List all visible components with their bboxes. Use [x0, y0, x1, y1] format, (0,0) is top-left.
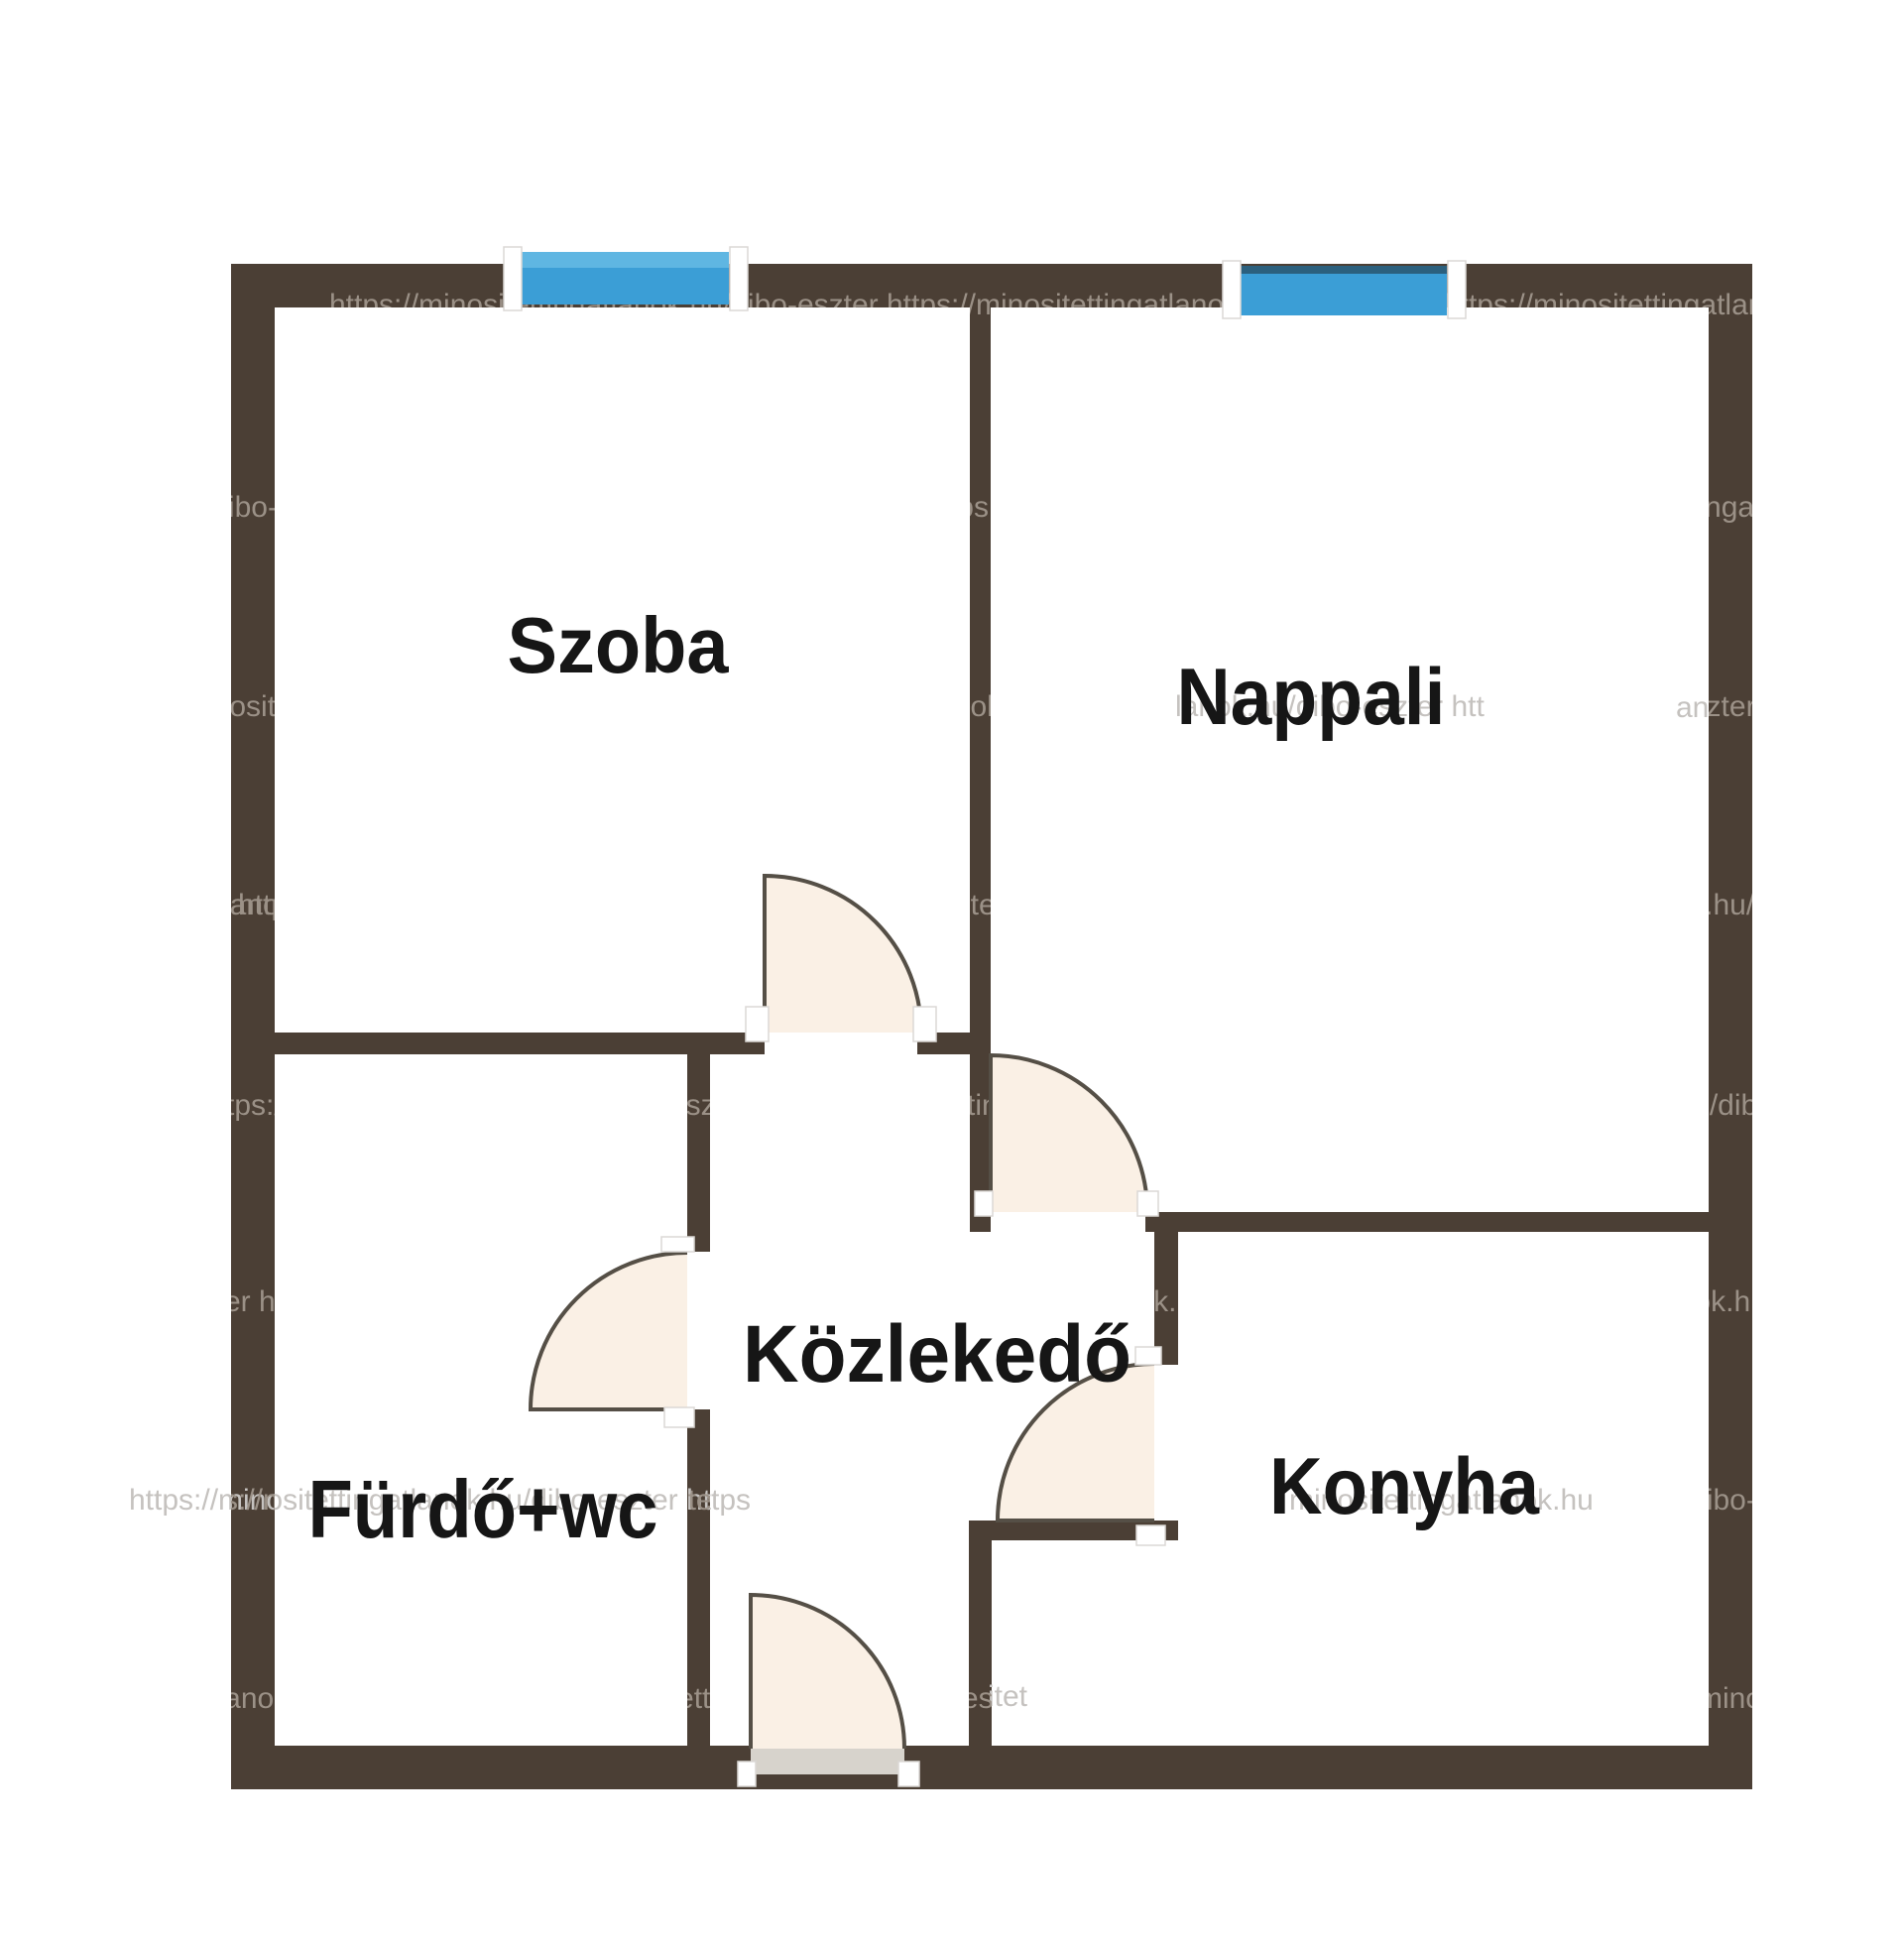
svg-text:Fürdő+wc: Fürdő+wc [308, 1463, 658, 1555]
svg-text:Nappali: Nappali [1177, 653, 1446, 742]
svg-text:https://minositettingatlanok.h: https://minositettingatlanok.hu/dibo-esz… [0, 889, 1904, 921]
svg-text:https://minositettingatlanok.h: https://minositettingatlanok.hu/dibo-esz… [0, 1089, 1904, 1122]
svg-text:Szoba: Szoba [508, 601, 729, 689]
svg-text:an: an [1676, 691, 1709, 724]
svg-text:Közlekedő: Közlekedő [743, 1309, 1131, 1399]
svg-text:itet: itet [988, 1680, 1028, 1713]
svg-text:https://minositettingatlanok.h: https://minositettingatlanok.hu/dibo-esz… [0, 491, 1904, 524]
svg-text:Konyha: Konyha [1269, 1442, 1540, 1531]
svg-text:https://minositettingatlanok.h: https://minositettingatlanok.hu/dibo-esz… [0, 690, 1904, 723]
svg-text:https://minositettingatlanok.h: https://minositettingatlanok.hu/dibo-esz… [0, 1682, 1904, 1715]
svg-text:lanok.: lanok. [223, 889, 302, 921]
